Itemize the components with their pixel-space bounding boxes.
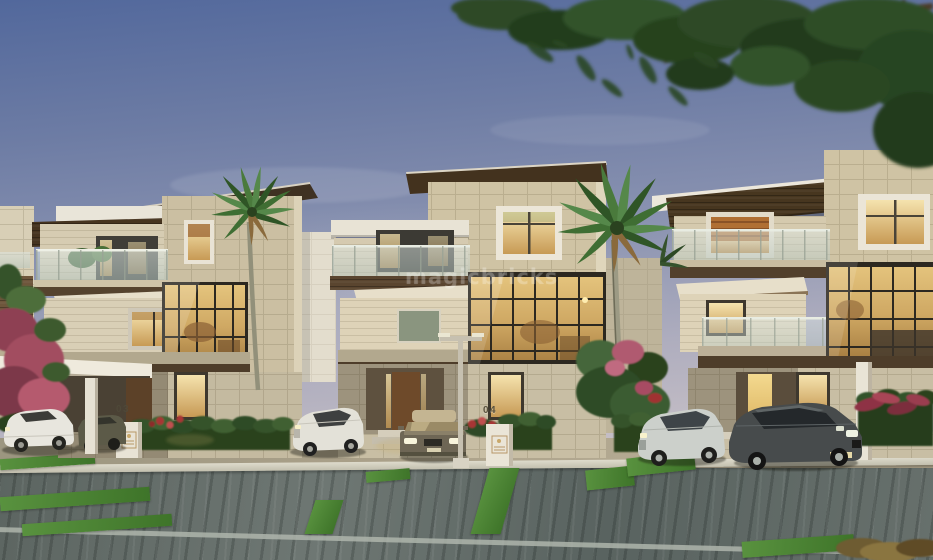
car-white-left: [4, 409, 74, 452]
carport-pillar: [85, 378, 98, 454]
grass-tuft-right: [836, 538, 933, 560]
watermark: magicbricks: [405, 265, 625, 289]
hedge-left: [129, 416, 294, 451]
hedge-right: [853, 389, 933, 446]
render-image: magicbricks 03 04: [0, 0, 933, 560]
villa-number-middle: 04: [483, 405, 497, 416]
tree-canopy: [451, 0, 933, 168]
number-pedestal-middle: [486, 424, 513, 466]
car-white-middle: [293, 408, 364, 456]
villa-number-left: 03: [116, 404, 130, 415]
